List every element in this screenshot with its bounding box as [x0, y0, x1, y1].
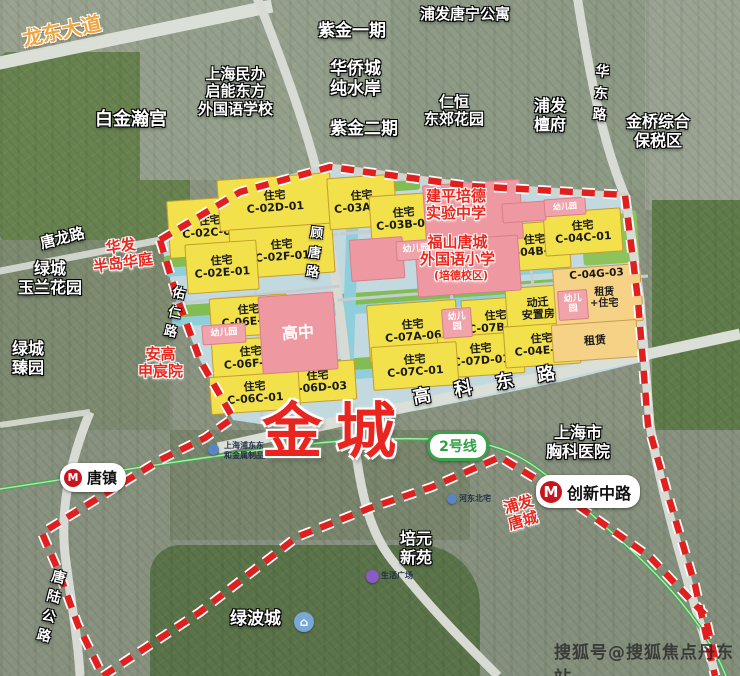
label-fushan-tangcheng: 福山唐城 外国语小学: [420, 234, 495, 269]
lvbocheng-icon: ⌂: [294, 612, 314, 632]
main-area-label: 金城: [262, 398, 410, 468]
metro-logo-icon: M: [64, 469, 82, 487]
label-pufa-tanfu: 浦发 檀府: [534, 97, 566, 134]
label-renheng-dongjiao: 仁恒 东郊花园: [424, 94, 484, 129]
label-lvcheng-zhenyuan: 绿城 臻园: [12, 340, 44, 377]
label-peide-xiaoqu: (培德校区): [434, 270, 488, 283]
label-pufa-tangning: 浦发唐宁公寓: [420, 6, 510, 23]
metro-line2-badge: 2号线: [427, 431, 489, 461]
metro-station-创新中路: M创新中路: [536, 475, 640, 508]
factory-icon: [208, 444, 219, 455]
hedongbeizhai-icon: [447, 494, 457, 504]
label-huaqiaocheng: 华侨城 纯水岸: [330, 60, 381, 99]
map-canvas: 住宅C-02C-01住宅C-02D-01住宅C-02F-01住宅C-02E-01…: [0, 0, 740, 676]
label-lvbocheng: 绿波城: [230, 610, 281, 630]
label-chest-hospital: 上海市 胸科医院: [546, 424, 610, 461]
plaza-icon: [366, 570, 379, 583]
label-lvcheng-yulan: 绿城 玉兰花园: [18, 260, 82, 297]
metro-station-唐镇: M唐镇: [60, 463, 126, 492]
label-hedongbeizhai-tiny: 河东北宅: [459, 494, 491, 504]
label-zijin-yiqi: 紫金一期: [318, 22, 386, 42]
station-name: 唐镇: [87, 467, 117, 488]
label-qineng-school: 上海民办 启能东方 外国语学校: [198, 66, 273, 118]
label-jinqiao-baoshuiqu: 金桥综合 保税区: [626, 113, 690, 150]
label-zulin-zhuzhai-note: 租赁 +住宅: [590, 288, 618, 310]
label-baijin-hangong: 白金瀚宫: [95, 110, 167, 131]
label-shenghuo-plaza-tiny: 生活广场: [381, 571, 413, 581]
label-peiyuan-xinyuan: 培元 新苑: [400, 530, 432, 567]
label-jianping-peide: 建平培德 实验中学: [426, 188, 486, 223]
label-zijin-erqi: 紫金二期: [330, 120, 398, 140]
label-angao-shenchenyuan: 安高 申宸院: [138, 346, 183, 381]
metro-logo-icon: M: [540, 481, 562, 503]
station-name: 创新中路: [567, 480, 631, 504]
watermark: 搜狐号@搜狐焦点丹东站: [554, 638, 740, 676]
